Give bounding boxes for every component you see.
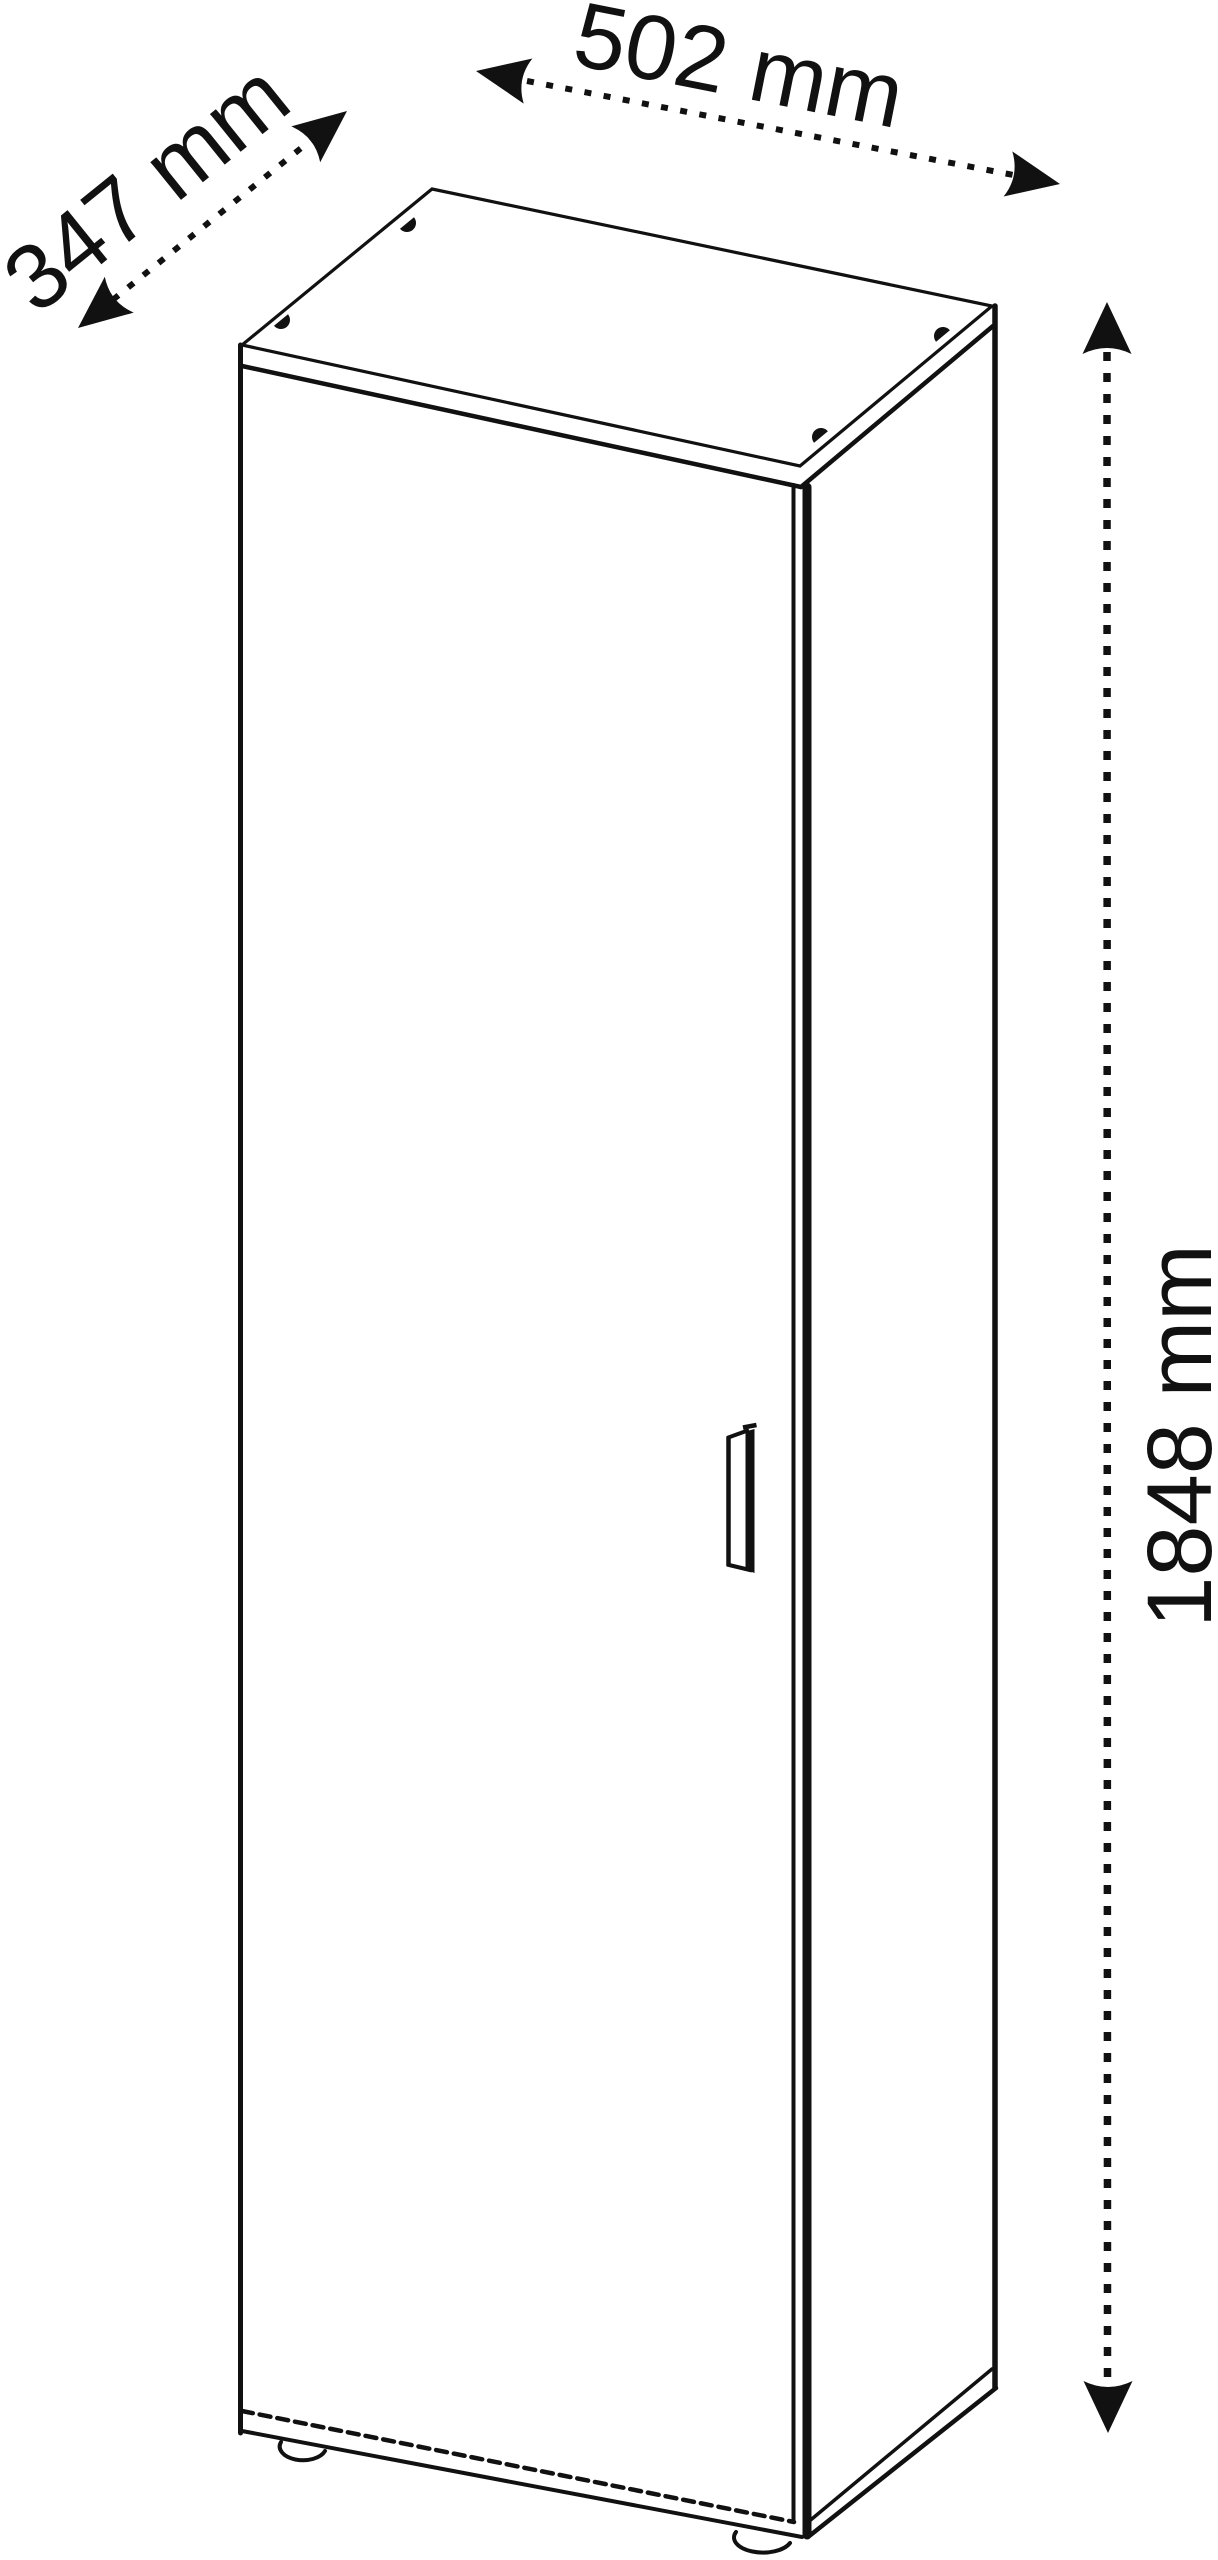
svg-text:1848 mm: 1848 mm [1129,1244,1218,1628]
